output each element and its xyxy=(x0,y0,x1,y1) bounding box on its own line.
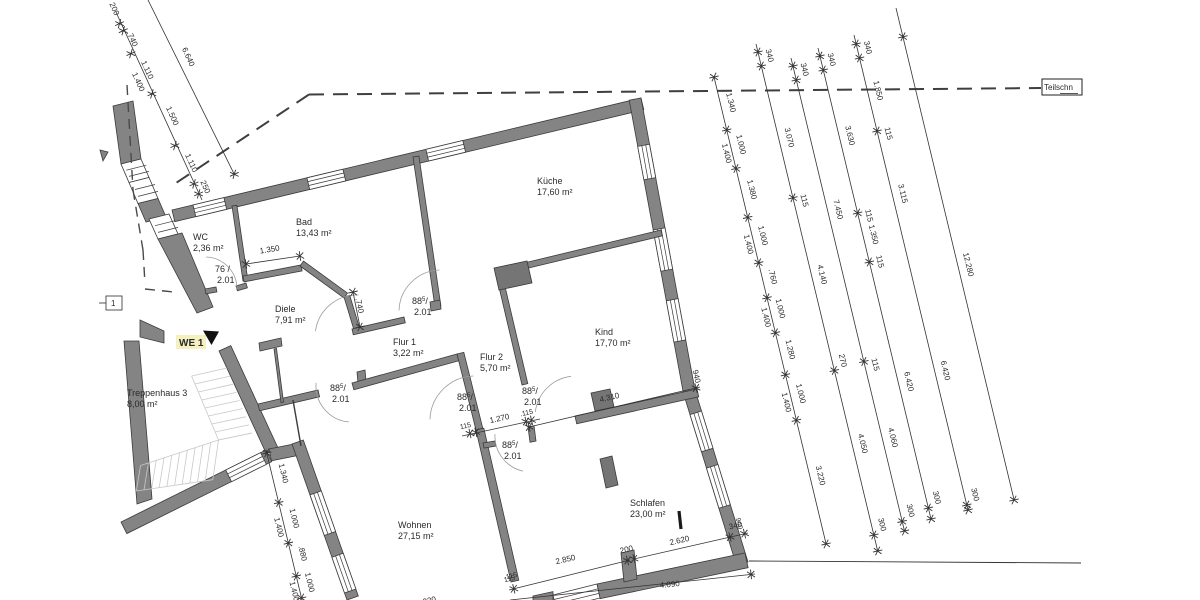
svg-text:885/: 885/ xyxy=(412,296,428,306)
svg-text:Kind: Kind xyxy=(595,327,613,337)
svg-text:23,00 m²: 23,00 m² xyxy=(630,509,666,519)
svg-text:7,91 m²: 7,91 m² xyxy=(275,315,306,325)
svg-text:3,22 m²: 3,22 m² xyxy=(393,348,424,358)
svg-text:2.01: 2.01 xyxy=(459,403,477,413)
svg-text:2.01: 2.01 xyxy=(332,394,350,404)
svg-text:885/: 885/ xyxy=(330,383,346,393)
svg-text:Schlafen: Schlafen xyxy=(630,498,665,508)
svg-text:8,00 m²: 8,00 m² xyxy=(127,399,158,409)
svg-text:13,43 m²: 13,43 m² xyxy=(296,228,332,238)
svg-text:Flur 1: Flur 1 xyxy=(393,337,416,347)
svg-text:2.01: 2.01 xyxy=(524,397,542,407)
svg-text:76 /: 76 / xyxy=(215,264,231,274)
svg-text:2,36 m²: 2,36 m² xyxy=(193,243,224,253)
svg-text:Küche: Küche xyxy=(537,176,563,186)
svg-text:Bad: Bad xyxy=(296,217,312,227)
svg-text:WE 1: WE 1 xyxy=(179,338,204,349)
svg-text:885/: 885/ xyxy=(457,392,473,402)
svg-text:2.01: 2.01 xyxy=(414,307,432,317)
svg-text:WC: WC xyxy=(193,232,208,242)
svg-text:Diele: Diele xyxy=(275,304,296,314)
svg-text:Teilschn: Teilschn xyxy=(1044,83,1073,92)
svg-text:Treppenhaus 3: Treppenhaus 3 xyxy=(127,388,187,398)
svg-text:17,60 m²: 17,60 m² xyxy=(537,187,573,197)
svg-text:885/: 885/ xyxy=(502,440,518,450)
svg-text:5,70 m²: 5,70 m² xyxy=(480,363,511,373)
svg-text:885/: 885/ xyxy=(522,386,538,396)
svg-text:Flur 2: Flur 2 xyxy=(480,352,503,362)
svg-text:17,70 m²: 17,70 m² xyxy=(595,338,631,348)
svg-text:2.01: 2.01 xyxy=(504,451,522,461)
svg-text:27,15 m²: 27,15 m² xyxy=(398,531,434,541)
svg-text:1: 1 xyxy=(111,299,116,308)
svg-text:Wohnen: Wohnen xyxy=(398,520,431,530)
svg-text:2.01: 2.01 xyxy=(217,275,235,285)
